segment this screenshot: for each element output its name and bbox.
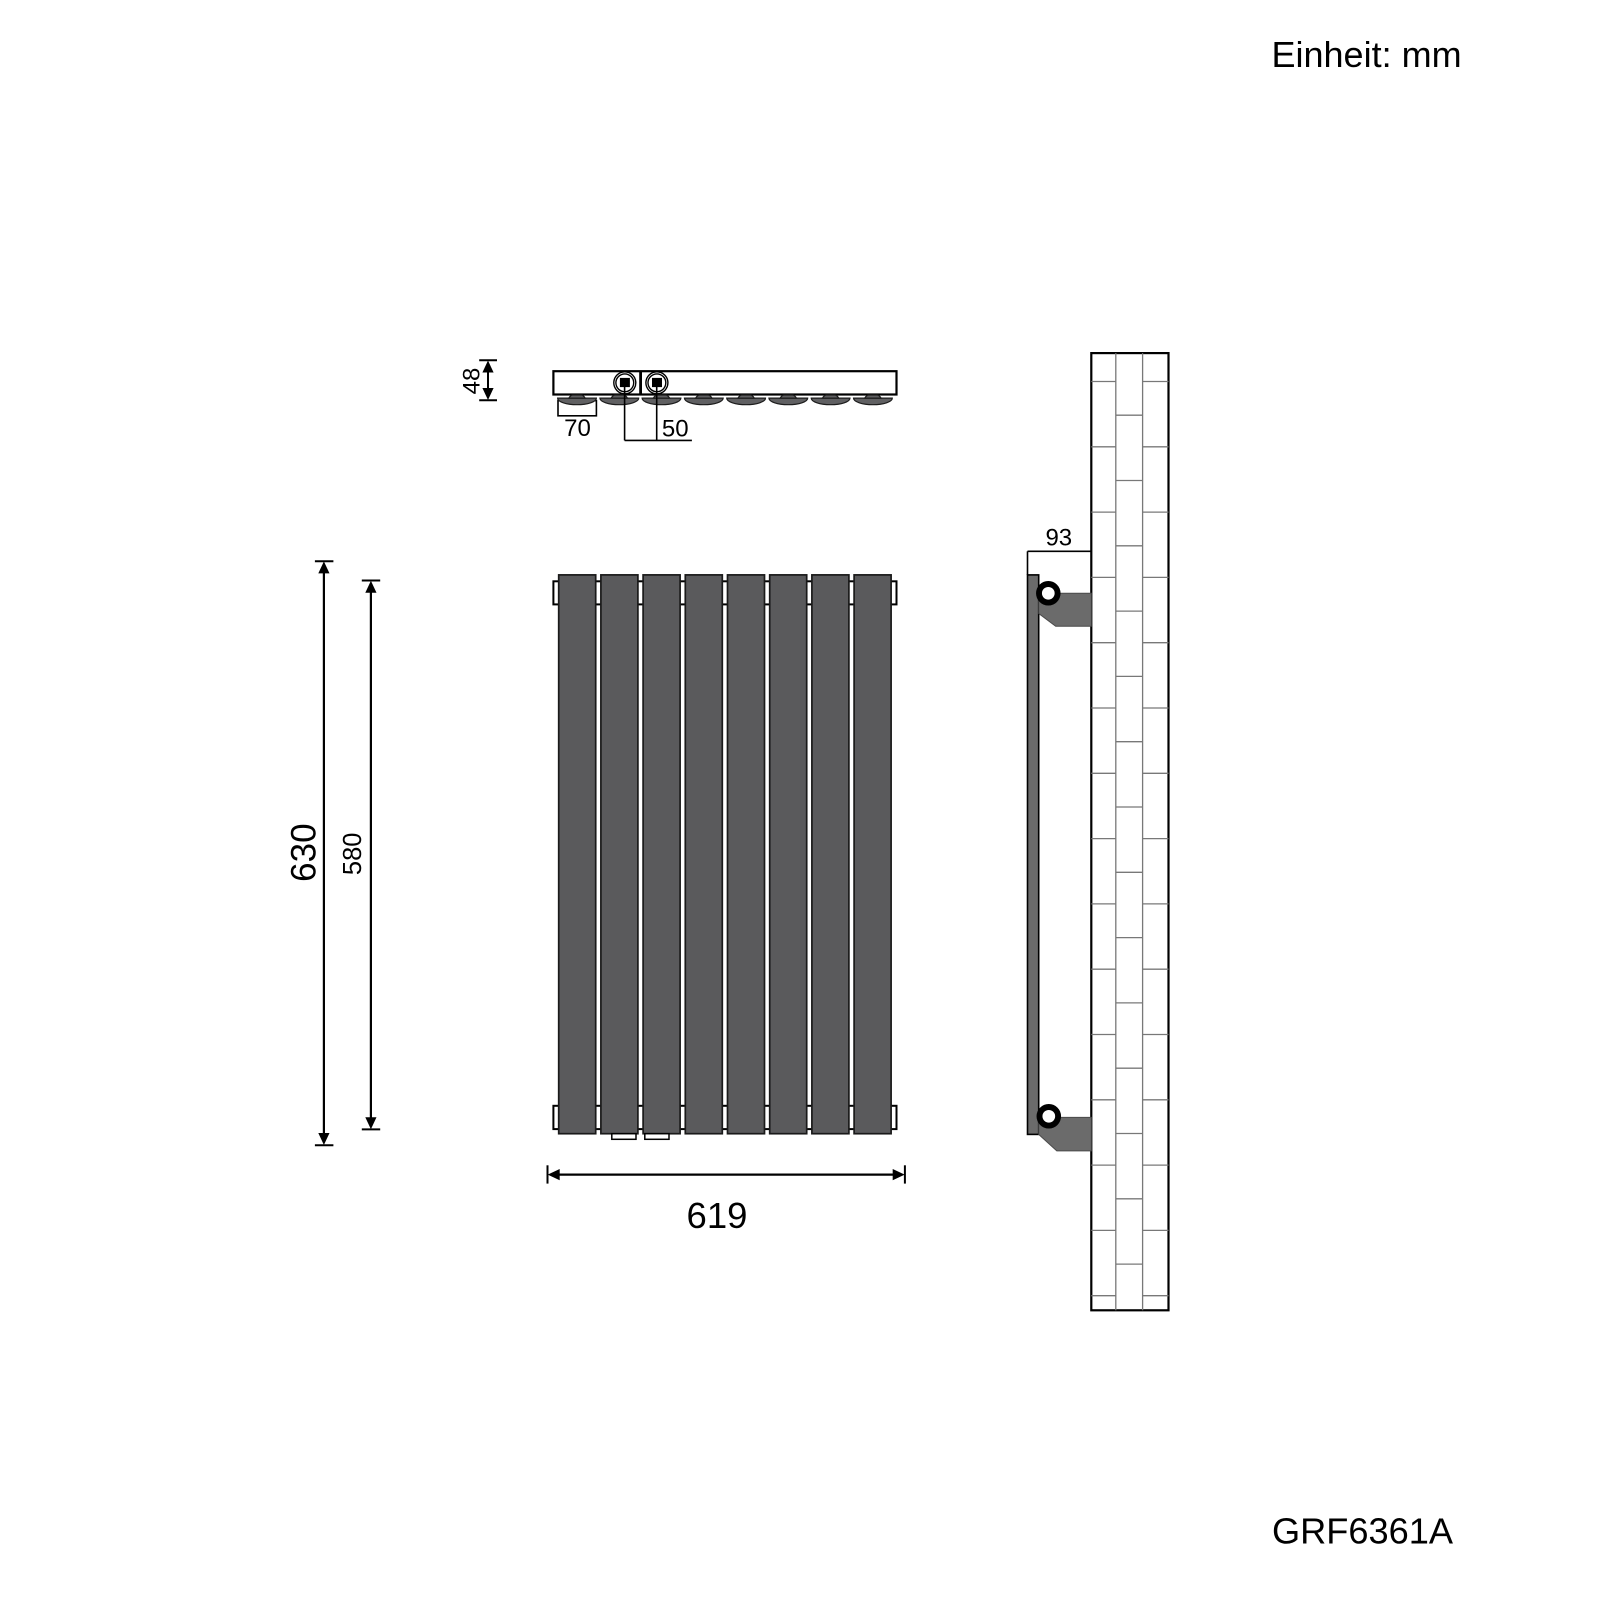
svg-text:GRF6361A: GRF6361A — [1272, 1510, 1454, 1551]
svg-text:93: 93 — [1045, 525, 1072, 552]
svg-text:580: 580 — [339, 833, 367, 876]
svg-text:50: 50 — [662, 416, 689, 443]
svg-text:619: 619 — [687, 1195, 748, 1236]
svg-text:70: 70 — [564, 415, 591, 442]
svg-text:48: 48 — [459, 368, 486, 395]
svg-text:630: 630 — [284, 823, 323, 881]
svg-text:Einheit: mm: Einheit: mm — [1272, 34, 1462, 75]
